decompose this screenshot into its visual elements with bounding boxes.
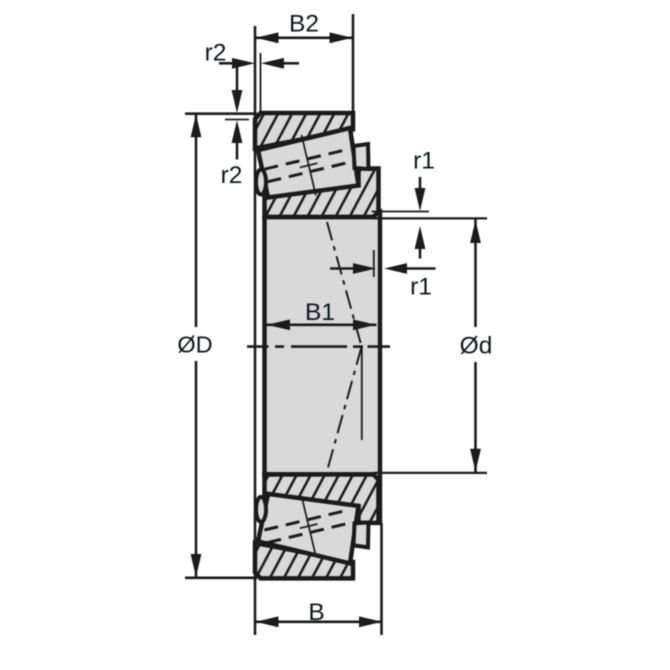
svg-text:ØD: ØD [177,332,212,358]
svg-text:r2: r2 [205,40,227,67]
svg-text:B: B [308,599,324,626]
svg-text:B1: B1 [305,299,335,326]
svg-text:r1: r1 [410,274,432,301]
svg-text:Ød: Ød [460,333,493,360]
svg-text:r2: r2 [221,162,243,189]
svg-text:B2: B2 [289,11,319,38]
svg-text:r1: r1 [413,148,435,175]
